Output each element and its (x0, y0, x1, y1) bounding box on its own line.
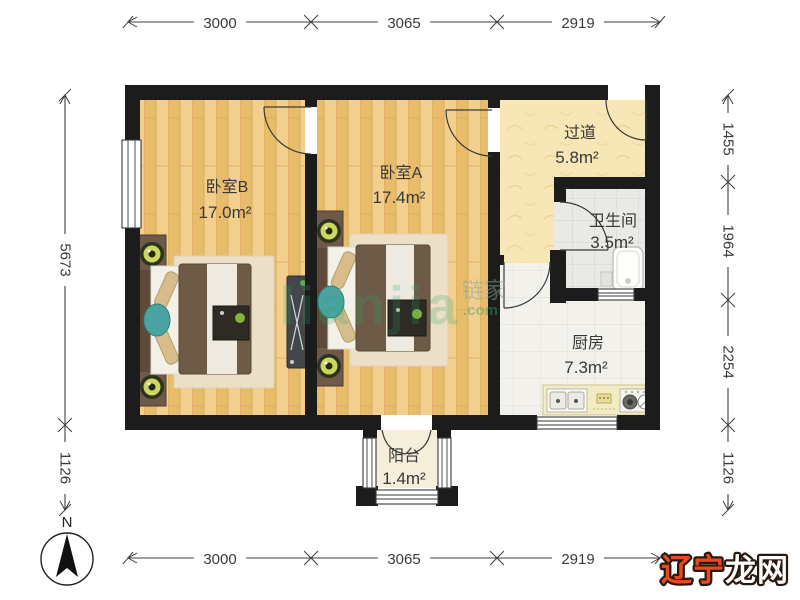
bed-icon (139, 264, 251, 374)
watermark-site-logo: 辽宁龙网 (661, 553, 789, 588)
dim-right-2: 1964 (720, 224, 737, 257)
kitchen-fixtures (543, 385, 654, 415)
drain-icon (625, 278, 631, 284)
room-hallway-name: 过道 (564, 124, 596, 142)
dim-right-1: 1455 (720, 122, 737, 155)
watermark-lianjia-latin: lianjia (280, 276, 461, 336)
dim-top-1: 3000 (203, 15, 236, 32)
watermark-site-white: 龙网 (725, 553, 789, 588)
room-bedroom-b-name: 卧室B (206, 178, 249, 196)
dim-bottom-1: 3000 (203, 551, 236, 568)
window-bedroom-b (122, 140, 141, 228)
dimension-bottom: 3000 3065 2919 (123, 550, 665, 568)
dim-bottom-2: 3065 (387, 551, 420, 568)
compass-label: N (62, 514, 73, 531)
dim-right-3: 2254 (720, 345, 737, 378)
watermark-lianjia-com: .com (463, 302, 498, 319)
lamp-icon (317, 354, 341, 378)
room-hallway-area: 5.8m² (555, 148, 599, 167)
dim-left-2: 1126 (57, 452, 74, 484)
room-kitchen-name: 厨房 (572, 334, 604, 352)
compass-icon: N (41, 514, 93, 585)
sink-icon (547, 389, 587, 412)
watermark-lianjia-cn: 链家 (462, 278, 506, 303)
dimension-right: 1455 1964 2254 1126 (720, 89, 737, 516)
dim-top-3: 2919 (561, 15, 594, 32)
room-bathroom-area: 3.5m² (590, 233, 634, 252)
room-balcony-area: 1.4m² (382, 469, 426, 488)
lamp-icon (317, 219, 341, 243)
lamp-icon (140, 242, 164, 266)
dim-top-2: 3065 (387, 15, 420, 32)
lamp-icon (140, 375, 164, 399)
room-kitchen-area: 7.3m² (564, 358, 608, 377)
dim-right-4: 1126 (720, 452, 737, 484)
bath-stool (601, 272, 612, 286)
watermark-site-red: 辽宁 (661, 553, 725, 588)
room-balcony-name: 阳台 (388, 447, 420, 465)
room-bathroom-name: 卫生间 (589, 212, 637, 230)
dimension-top: 3000 3065 2919 (123, 14, 665, 32)
dimension-left: 5673 1126 (57, 89, 74, 516)
window-bathroom (598, 289, 634, 300)
room-bedroom-b-area: 17.0m² (199, 203, 252, 222)
room-bedroom-a-area: 17.4m² (373, 188, 426, 207)
window-kitchen (537, 417, 617, 429)
dim-left-1: 5673 (57, 243, 74, 276)
dim-bottom-3: 2919 (561, 551, 594, 568)
room-bedroom-a-name: 卧室A (380, 164, 423, 182)
floor-plan: 卧室B 17.0m² 卧室A 17.4m² 过道 5.8m² 卫生间 3.5m²… (0, 0, 800, 600)
